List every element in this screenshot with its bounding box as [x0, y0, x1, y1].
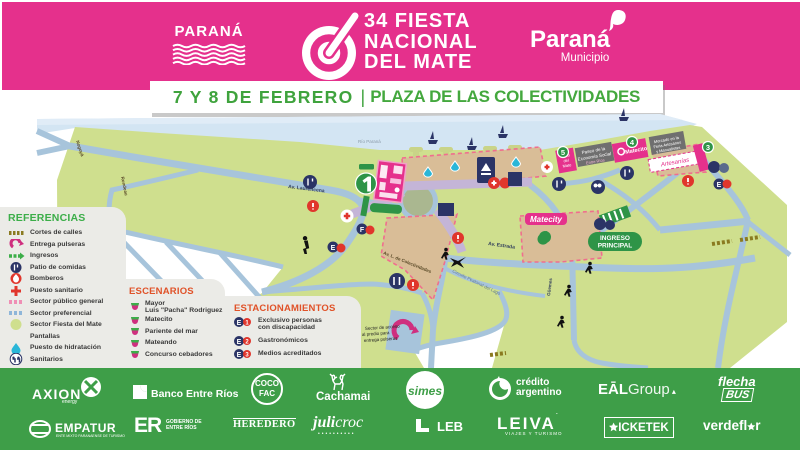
- svg-text:FAC: FAC: [259, 389, 275, 398]
- svg-text:Río Paraná: Río Paraná: [358, 139, 381, 144]
- svg-text:COCO: COCO: [255, 379, 279, 388]
- svg-text:E: E: [717, 182, 722, 189]
- svg-text:E: E: [237, 339, 242, 346]
- svg-text:Matecity: Matecity: [530, 215, 563, 224]
- svg-text:3: 3: [706, 143, 710, 152]
- svg-text:E: E: [237, 320, 242, 327]
- svg-text:PRINCIPAL: PRINCIPAL: [598, 243, 633, 250]
- svg-text:E: E: [331, 245, 336, 252]
- svg-text:simes: simes: [408, 384, 442, 398]
- svg-text:INGRESO: INGRESO: [600, 235, 630, 242]
- svg-text:F: F: [360, 227, 365, 234]
- svg-text:E: E: [237, 352, 242, 359]
- svg-text:5: 5: [561, 148, 565, 157]
